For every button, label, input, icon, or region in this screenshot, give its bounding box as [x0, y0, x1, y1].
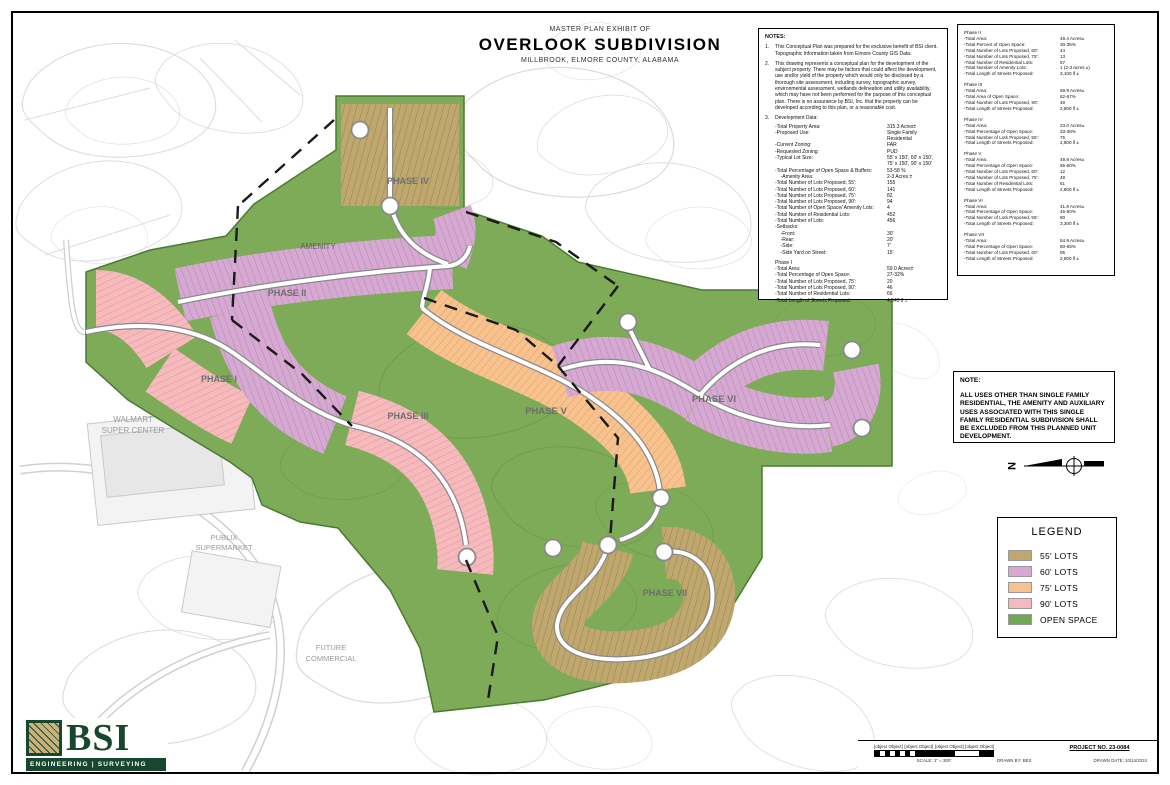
plan-sheet: PHASE IV AMENITY PHASE II PHASE I PHASE …	[0, 0, 1170, 785]
sheet-border	[11, 11, 1159, 774]
